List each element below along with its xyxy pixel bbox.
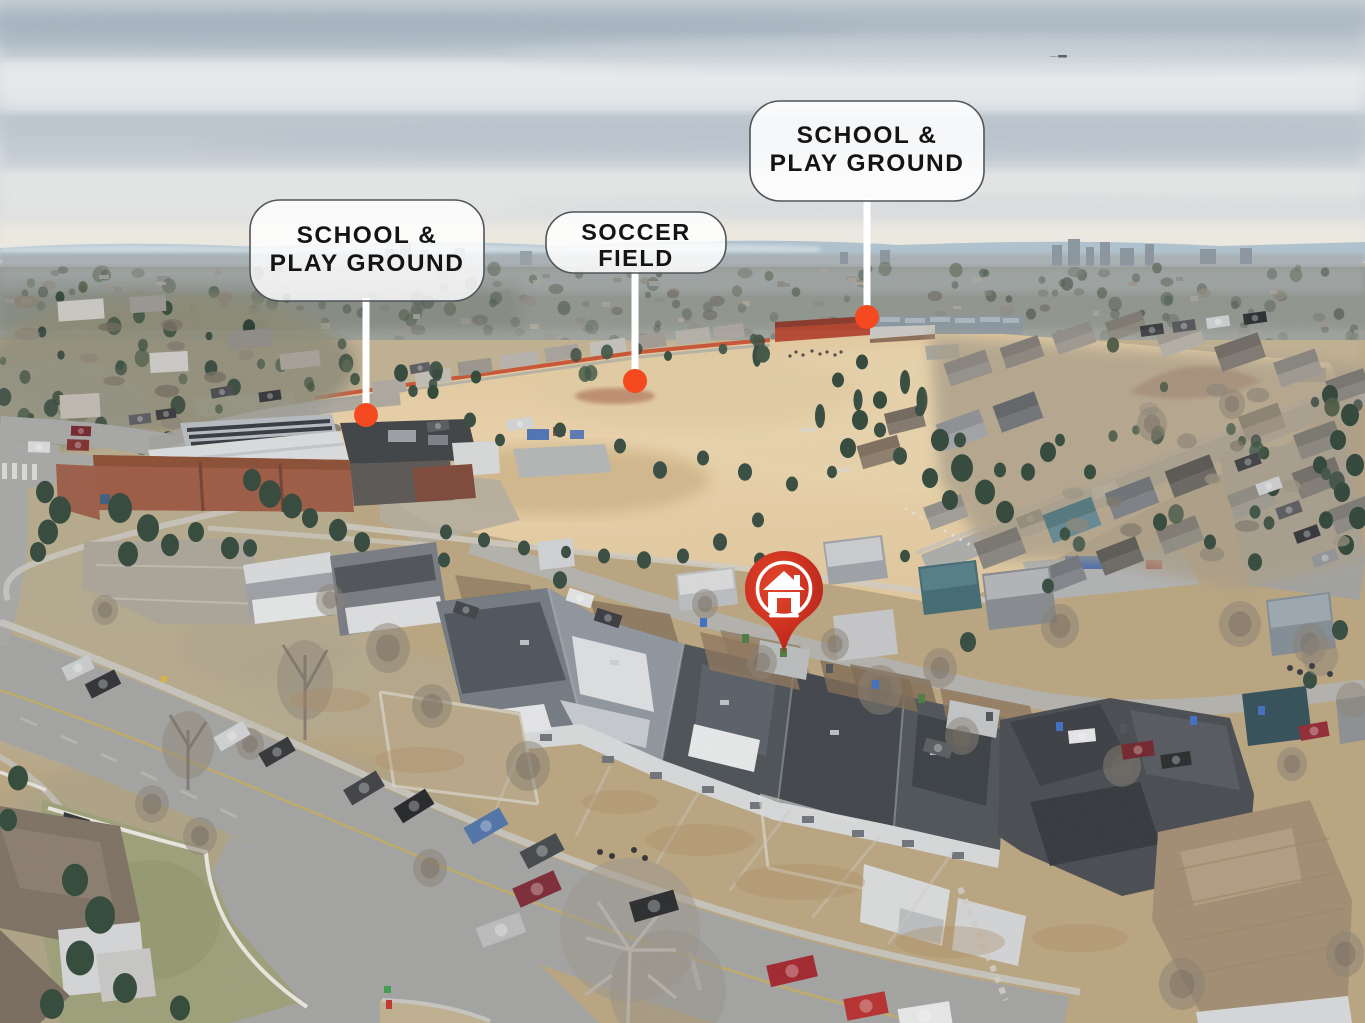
svg-text:PLAY GROUND: PLAY GROUND [270, 250, 465, 277]
svg-text:SCHOOL &: SCHOOL & [297, 222, 438, 249]
svg-text:SOCCER: SOCCER [581, 219, 691, 245]
svg-text:SCHOOL &: SCHOOL & [797, 122, 938, 149]
svg-text:PLAY GROUND: PLAY GROUND [770, 150, 965, 177]
svg-text:FIELD: FIELD [598, 245, 673, 271]
